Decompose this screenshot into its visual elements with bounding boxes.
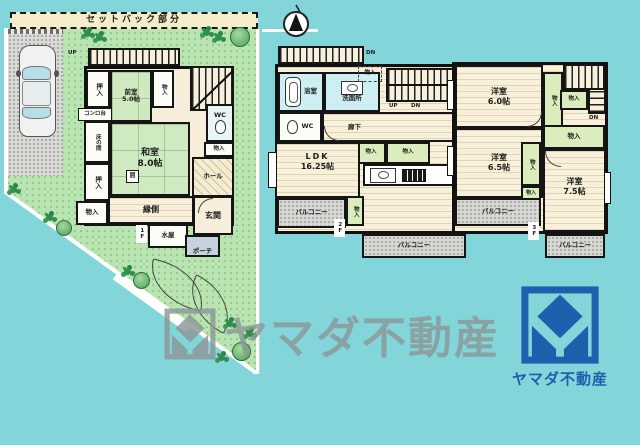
room-mizuya: 水屋	[148, 224, 188, 248]
roof-strip	[278, 46, 364, 64]
room-label: ポーチ	[193, 248, 213, 255]
stairs-up-label: UP	[389, 104, 398, 110]
room-label: 物入	[365, 150, 376, 156]
tree-icon	[56, 220, 72, 236]
car-windshield	[22, 66, 51, 80]
room-label: 洗面所	[342, 95, 362, 102]
room-oshiire-b: 押入	[84, 163, 110, 201]
shrub-icon	[203, 29, 210, 36]
north-compass-icon	[281, 4, 311, 40]
room-monoiri-bl: 物入	[76, 201, 108, 225]
toilet-icon	[215, 120, 226, 134]
shrub-icon	[10, 186, 17, 193]
setback-strip: セットバック部分	[10, 12, 258, 29]
floor-tag-label: 1F	[139, 228, 145, 240]
room-konrodai: コンロ台	[78, 108, 112, 121]
deck	[88, 48, 180, 66]
shrub-icon	[124, 268, 131, 275]
room-label: 和室	[141, 148, 159, 159]
room-oshiire-a: 押入	[86, 70, 110, 108]
watermark: ヤマダ不動産	[164, 302, 500, 366]
window	[604, 172, 611, 204]
room-size-label: 16.25帖	[301, 162, 334, 172]
shrub-icon	[96, 34, 103, 41]
hearth-box: 囲	[126, 170, 139, 183]
room-label: コンロ台	[84, 112, 106, 118]
room-tokonoma: 床の間	[84, 121, 110, 163]
shrub-icon	[84, 30, 91, 37]
balcony-bottom-3f: バルコニー	[545, 234, 605, 258]
setback-label: セットバック部分	[86, 15, 182, 26]
floor-tag-label: 3F	[531, 225, 537, 237]
room-size-label: 6.0帖	[488, 97, 510, 107]
bathtub-icon	[285, 77, 301, 107]
room-label: 廊下	[348, 124, 361, 131]
room-monoiri-a-2f: 物入	[356, 142, 386, 164]
room-label: 物入	[86, 209, 99, 216]
hearth-label: 囲	[130, 174, 136, 180]
balcony-bottom-2f: バルコニー	[362, 234, 466, 258]
yamada-logo-icon	[521, 286, 599, 364]
room-washitsu: 和室 8.0帖	[110, 122, 190, 196]
floor3-tag: 3F	[528, 222, 539, 240]
room-monoiri-top: 物入	[152, 70, 174, 108]
room-rouka: 廊下	[322, 112, 466, 142]
room-label: LDK	[306, 152, 330, 162]
room-size-label: 6.5帖	[488, 163, 510, 173]
room-label: 物入	[526, 191, 536, 196]
room-monoiri-b-2f: 物入	[386, 142, 430, 164]
room-label: 物入	[528, 159, 534, 170]
room-size-label: 5.0帖	[122, 96, 140, 103]
car-roof	[22, 81, 51, 106]
room-label: 水屋	[162, 232, 175, 239]
room-bath: 浴室	[278, 72, 324, 112]
balcony-label: バルコニー	[295, 209, 327, 216]
room-label: 洋室	[491, 87, 507, 97]
stairs-3f-run	[588, 88, 606, 114]
company-name: ヤマダ不動産	[512, 368, 608, 389]
kitchen-sink-icon	[370, 168, 396, 183]
company-logo: ヤマダ不動産	[504, 286, 616, 389]
toilet-icon	[287, 120, 298, 134]
room-label: 物入	[402, 150, 413, 156]
room-label: 物入	[160, 84, 166, 95]
kitchen-stove-icon	[402, 169, 426, 182]
stairs-dn-label-3f: DN	[589, 116, 598, 122]
room-engawa: 縁側	[108, 196, 194, 224]
balcony-label: バルコニー	[559, 242, 591, 249]
room-label: 物入	[568, 97, 579, 103]
stairs-dn-label: DN	[411, 104, 420, 110]
room-label: 洋室	[491, 153, 507, 163]
room-label: 押入	[94, 83, 101, 96]
room-monoiri-top-2f: 物入	[358, 66, 382, 82]
tree-icon	[230, 27, 250, 47]
window	[447, 146, 454, 176]
room-monoiri-e-3f: 物入	[543, 125, 605, 149]
room-label: 物入	[364, 71, 375, 77]
curb-hatch	[8, 29, 63, 34]
room-label: 押入	[93, 176, 100, 189]
room-zenshitsu: 前室 5.0帖	[110, 70, 152, 122]
room-label: 物入	[568, 133, 581, 140]
room-monoiri-c-3f: 物入	[521, 142, 541, 186]
car	[19, 45, 56, 137]
watermark-logo-icon	[164, 308, 216, 360]
floor1-tag: 1F	[136, 225, 147, 243]
shrub-icon	[46, 214, 53, 221]
deck-up-label: UP	[68, 51, 77, 57]
floor2-tag: 2F	[334, 219, 345, 237]
room-monoiri-b-3f: 物入	[560, 90, 588, 110]
window	[447, 80, 454, 110]
room-label: WC	[302, 123, 314, 130]
room-hall: ホール	[192, 157, 234, 197]
room-label: WC	[214, 112, 226, 119]
balcony-label: バルコニー	[398, 242, 430, 249]
tree-icon	[133, 272, 150, 289]
roof-dn-label: DN	[366, 51, 375, 57]
car-mirror-left	[16, 70, 21, 77]
room-size-label: 7.5帖	[563, 187, 585, 197]
room-label: 物入	[352, 206, 358, 217]
porch: ポーチ	[185, 235, 220, 257]
room-label: 物入	[550, 95, 556, 106]
balcony-label: バルコニー	[482, 208, 514, 215]
watermark-text: ヤマダ不動産	[224, 302, 500, 366]
car-rear-window	[22, 107, 51, 119]
room-genkan: 玄関	[193, 196, 233, 235]
floor-tag-label: 2F	[337, 222, 343, 234]
room-label: 縁側	[143, 205, 159, 215]
room-monoiri-mid: 物入	[204, 142, 234, 157]
room-label: 洋室	[567, 177, 583, 187]
room-label: 物入	[213, 147, 224, 153]
room-label: ホール	[203, 173, 223, 180]
bay-window	[268, 152, 277, 188]
room-monoiri-c-2f: 物入	[346, 196, 364, 226]
stairs-3f	[563, 64, 605, 90]
room-wc-1f: WC	[206, 104, 234, 142]
shrub-icon	[215, 34, 222, 41]
room-ldk: LDK 16.25帖	[275, 142, 360, 198]
car-mirror-right	[54, 70, 59, 77]
room-label: 床の間	[94, 134, 100, 151]
room-size-label: 8.0帖	[138, 159, 163, 170]
room-label: 浴室	[304, 88, 317, 95]
floorplan-image: セットバック部分 UP 押入	[0, 0, 640, 445]
site-boundary-left	[4, 28, 8, 194]
room-wc-2f: WC	[278, 112, 322, 142]
